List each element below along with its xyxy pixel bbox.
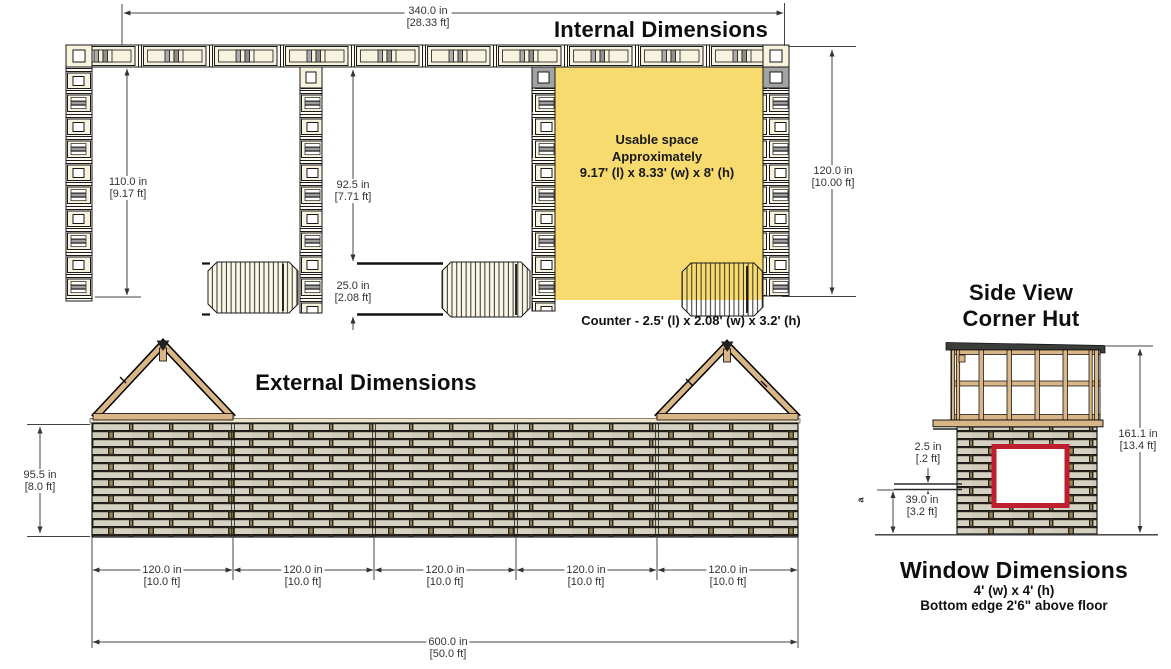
- counter-2: [442, 262, 530, 317]
- window-note-label: Bottom edge 2'6" above floor: [920, 598, 1107, 613]
- counter-1: [208, 262, 298, 313]
- dim-2-5: 2.5 in[.2 ft]: [913, 441, 944, 465]
- plan-left-wall: [66, 67, 92, 301]
- floor-plan: [66, 3, 856, 330]
- counter-label: Counter - 2.5' (l) x 2.08' (w) x 3.2' (h…: [581, 313, 800, 328]
- external-bay-dim-2: 120.0 in[10.0 ft]: [281, 564, 324, 588]
- dim-92: 92.5 in[7.71 ft]: [333, 179, 374, 203]
- dim-95: 95.5 in[8.0 ft]: [21, 469, 58, 493]
- plan-divider-wall-1: [300, 67, 322, 313]
- external-bay-dim-4: 120.0 in[10.0 ft]: [564, 564, 607, 588]
- construction-drawing: Internal Dimensions External Dimensions …: [0, 0, 1171, 669]
- window-dimensions-title: Window Dimensions: [900, 557, 1128, 584]
- dim-600: 600.0 in[50.0 ft]: [426, 636, 469, 660]
- usable-space-label: Usable space Approximately 9.17' (l) x 8…: [580, 132, 735, 182]
- dim-120-right: 120.0 in[10.00 ft]: [810, 165, 857, 189]
- dim-340: 340.0 in[28.33 ft]: [405, 5, 452, 29]
- counter-3: [682, 263, 763, 316]
- external-dimensions-title: External Dimensions: [255, 370, 476, 396]
- hut-sill: [933, 420, 1103, 427]
- dim-110: 110.0 in[9.17 ft]: [107, 176, 149, 200]
- dim-39: 39.0 in[3.2 ft]: [903, 494, 940, 518]
- external-bay-dim-5: 120.0 in[10.0 ft]: [706, 564, 749, 588]
- external-bay-dim-1: 120.0 in[10.0 ft]: [140, 564, 183, 588]
- dim-161: 161.1 in[13.4 ft]: [1116, 428, 1159, 452]
- side-view-title-line1: Side View: [969, 280, 1073, 306]
- plan-divider-wall-2: [532, 67, 555, 311]
- side-view-title-line2: Corner Hut: [963, 306, 1080, 332]
- external-wall: [92, 423, 798, 537]
- gable-right: [657, 342, 798, 421]
- hut-window: [994, 447, 1067, 506]
- hut-window-frame: [951, 350, 1100, 420]
- rotated-a-marker: a: [856, 497, 866, 502]
- dim-25: 25.0 in[2.08 ft]: [333, 280, 374, 304]
- plan-right-wall: [763, 67, 789, 296]
- window-size-label: 4' (w) x 4' (h): [974, 583, 1055, 598]
- external-bay-dim-3: 120.0 in[10.0 ft]: [423, 564, 466, 588]
- gable-left: [93, 341, 233, 421]
- internal-dimensions-title: Internal Dimensions: [554, 17, 768, 43]
- plan-top-wall: [66, 45, 789, 67]
